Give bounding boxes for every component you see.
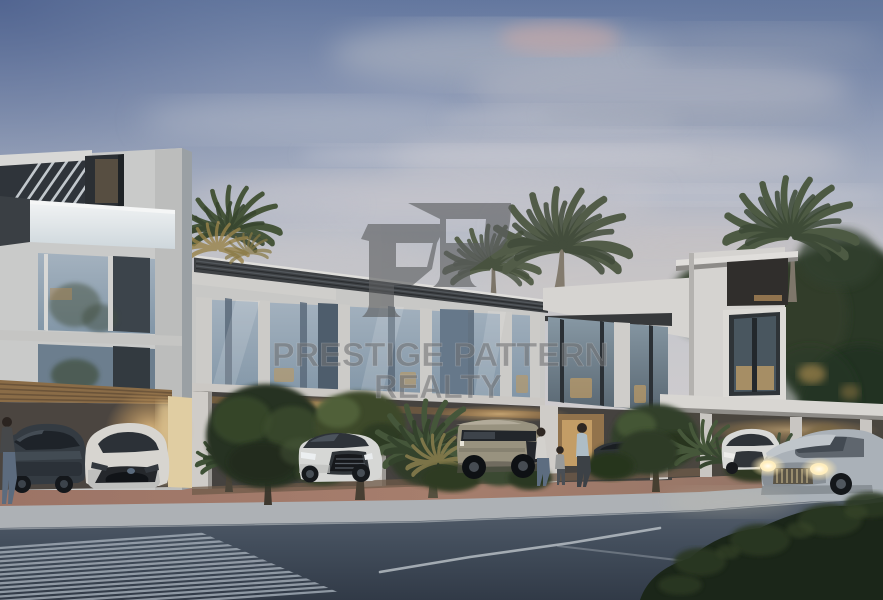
svg-text:REALTY: REALTY xyxy=(374,368,502,405)
